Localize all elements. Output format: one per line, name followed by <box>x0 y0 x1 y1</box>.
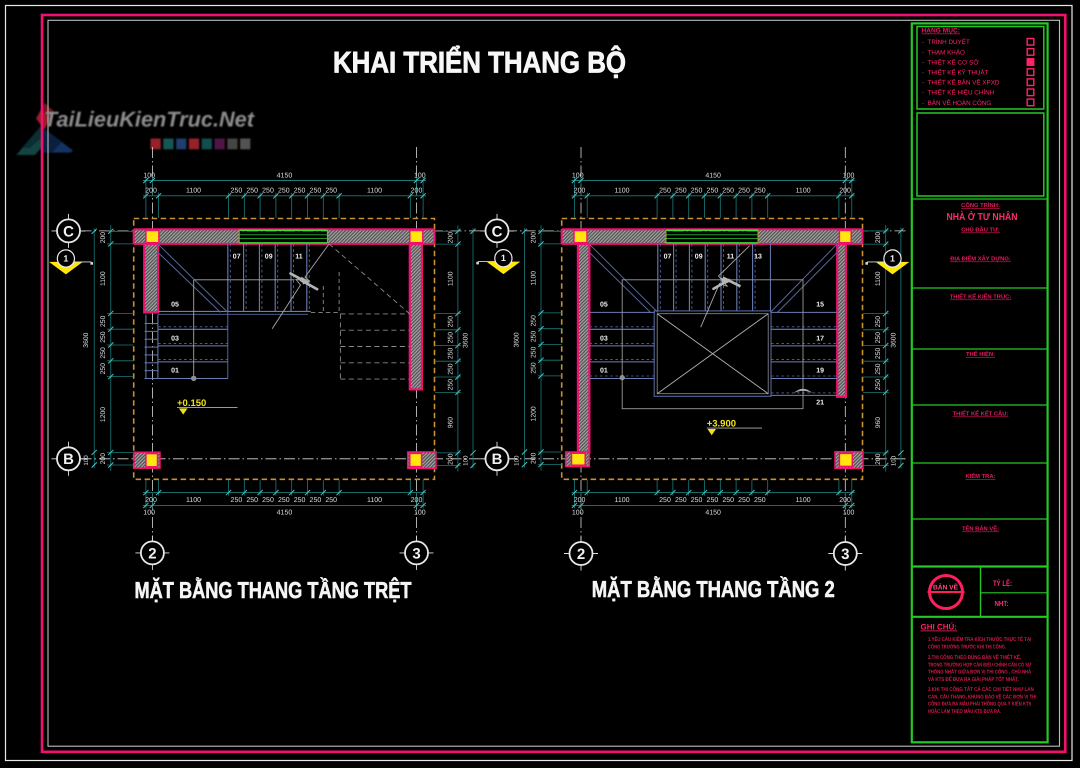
svg-text:21: 21 <box>816 400 824 407</box>
svg-text:250: 250 <box>530 315 537 327</box>
svg-text:3600: 3600 <box>890 332 897 347</box>
svg-text:250: 250 <box>447 316 454 328</box>
svg-text:THIẾT KẾ KIẾN TRÚC:: THIẾT KẾ KIẾN TRÚC: <box>950 293 1012 301</box>
svg-text:- THIẾT KẾ BẢN VẼ XPXD: - THIẾT KẾ BẢN VẼ XPXD <box>922 79 1000 87</box>
svg-text:4150: 4150 <box>705 172 721 179</box>
svg-text:TÊN BẢN VẼ:: TÊN BẢN VẼ: <box>962 525 999 533</box>
svg-text:NHT:: NHT: <box>995 599 1009 608</box>
svg-text:ĐỊA ĐIỂM XÂY DỰNG:: ĐỊA ĐIỂM XÂY DỰNG: <box>950 255 1011 263</box>
svg-text:250: 250 <box>100 315 107 327</box>
svg-text:250: 250 <box>707 188 719 195</box>
svg-text:05: 05 <box>600 302 608 309</box>
svg-text:200: 200 <box>145 188 157 195</box>
svg-text:250: 250 <box>875 379 882 391</box>
svg-text:THIẾT KẾ KẾT CẤU:: THIẾT KẾ KẾT CẤU: <box>953 410 1009 418</box>
svg-text:3.KHI THI CÔNG TẤT CẢ CÁC CHI: 3.KHI THI CÔNG TẤT CẢ CÁC CHI TIẾT NHƯ L… <box>928 686 1034 693</box>
svg-text:05: 05 <box>171 302 179 309</box>
svg-text:MẶT BẰNG THANG TẦNG TRỆT: MẶT BẰNG THANG TẦNG TRỆT <box>135 577 412 603</box>
svg-text:CHỦ ĐẦU TƯ:: CHỦ ĐẦU TƯ: <box>961 226 1000 234</box>
svg-text:TRONG TRƯỜNG HỢP CẦN ĐIỀU CHỈN: TRONG TRƯỜNG HỢP CẦN ĐIỀU CHỈNH CẦN CÓ S… <box>928 661 1032 668</box>
svg-text:100: 100 <box>414 510 426 517</box>
svg-text:09: 09 <box>265 254 273 261</box>
svg-text:250: 250 <box>278 497 290 504</box>
svg-text:200: 200 <box>530 452 537 464</box>
svg-text:MẶT BẰNG THANG TẦNG 2: MẶT BẰNG THANG TẦNG 2 <box>592 576 835 602</box>
svg-text:1100: 1100 <box>367 188 382 195</box>
svg-text:KHAI TRIỂN THANG BỘ: KHAI TRIỂN THANG BỘ <box>333 46 626 80</box>
svg-text:1100: 1100 <box>530 271 537 286</box>
svg-text:- THIẾT KẾ CƠ SỞ: - THIẾT KẾ CƠ SỞ <box>922 58 979 66</box>
svg-text:100: 100 <box>143 510 155 517</box>
svg-text:KIỂM TRA:: KIỂM TRA: <box>966 472 996 480</box>
svg-text:- THIẾT KẾ KỸ THUẬT: - THIẾT KẾ KỸ THUẬT <box>922 69 989 77</box>
svg-text:250: 250 <box>659 497 671 504</box>
svg-text:960: 960 <box>875 417 882 429</box>
svg-text:THỐNG NHẤT GIỮA ĐƠN VỊ THI CÔN: THỐNG NHẤT GIỮA ĐƠN VỊ THI CÔNG , CHỦ NH… <box>928 669 1031 676</box>
svg-text:250: 250 <box>100 363 107 375</box>
svg-text:250: 250 <box>231 497 243 504</box>
svg-text:CÔNG TRƯỜNG TRƯỚC KHI THI CÔNG: CÔNG TRƯỜNG TRƯỚC KHI THI CÔNG. <box>928 643 1006 650</box>
svg-text:100: 100 <box>890 455 897 466</box>
svg-text:250: 250 <box>530 331 537 343</box>
svg-text:200: 200 <box>411 497 423 504</box>
svg-text:250: 250 <box>294 188 306 195</box>
svg-text:250: 250 <box>722 188 734 195</box>
svg-text:- BẢN VẼ HOÀN CÔNG: - BẢN VẼ HOÀN CÔNG <box>922 99 991 107</box>
svg-text:09: 09 <box>695 254 703 261</box>
svg-text:3600: 3600 <box>83 332 90 347</box>
svg-text:250: 250 <box>875 332 882 344</box>
svg-text:3600: 3600 <box>462 333 469 348</box>
svg-text:200: 200 <box>411 188 423 195</box>
svg-text:250: 250 <box>754 497 766 504</box>
svg-text:1200: 1200 <box>100 407 107 422</box>
svg-text:VÀ KTS ĐỂ ĐƯA RA GIẢI PHÁP TỐT: VÀ KTS ĐỂ ĐƯA RA GIẢI PHÁP TỐT NHẤT. <box>928 676 1019 683</box>
svg-text:TaiLieuKienTruc.Net: TaiLieuKienTruc.Net <box>44 108 255 132</box>
svg-text:17: 17 <box>816 336 824 343</box>
svg-text:200: 200 <box>875 232 882 244</box>
svg-text:250: 250 <box>875 363 882 375</box>
svg-text:250: 250 <box>875 316 882 328</box>
svg-text:200: 200 <box>574 188 586 195</box>
svg-text:250: 250 <box>100 347 107 359</box>
svg-text:1: 1 <box>890 253 895 263</box>
svg-text:07: 07 <box>233 254 241 261</box>
svg-text:11: 11 <box>295 254 303 261</box>
svg-text:960: 960 <box>447 417 454 429</box>
svg-text:200: 200 <box>574 497 586 504</box>
svg-text:200: 200 <box>447 232 454 244</box>
svg-text:11: 11 <box>727 254 735 261</box>
svg-text:1100: 1100 <box>614 497 629 504</box>
svg-text:250: 250 <box>722 497 734 504</box>
svg-text:1100: 1100 <box>796 497 811 504</box>
svg-text:200: 200 <box>530 232 537 244</box>
svg-text:200: 200 <box>875 453 882 465</box>
svg-text:19: 19 <box>816 368 824 375</box>
svg-text:TỶ LỆ:: TỶ LỆ: <box>993 578 1012 588</box>
svg-text:250: 250 <box>246 497 258 504</box>
svg-text:250: 250 <box>310 497 322 504</box>
svg-text:1200: 1200 <box>530 406 537 421</box>
svg-text:250: 250 <box>262 188 274 195</box>
svg-text:250: 250 <box>278 188 290 195</box>
svg-text:250: 250 <box>738 497 750 504</box>
svg-text:200: 200 <box>100 232 107 244</box>
svg-text:100: 100 <box>572 172 584 179</box>
svg-text:2.THI CÔNG THEO ĐÚNG BẢN VẼ TH: 2.THI CÔNG THEO ĐÚNG BẢN VẼ THIẾT KẾ, <box>928 654 1022 661</box>
svg-text:250: 250 <box>447 379 454 391</box>
svg-text:THỂ HIỆN:: THỂ HIỆN: <box>966 350 995 358</box>
svg-text:1100: 1100 <box>875 271 882 286</box>
svg-text:200: 200 <box>839 497 851 504</box>
svg-text:100: 100 <box>143 172 155 179</box>
svg-text:BẢN VẼ: BẢN VẼ <box>933 583 958 592</box>
svg-text:1100: 1100 <box>186 188 201 195</box>
svg-text:250: 250 <box>246 188 258 195</box>
svg-text:100: 100 <box>514 455 521 466</box>
svg-text:250: 250 <box>530 346 537 358</box>
svg-text:03: 03 <box>171 336 179 343</box>
svg-text:100: 100 <box>83 455 90 466</box>
svg-text:- THIẾT KẾ HIỆU CHỈNH: - THIẾT KẾ HIỆU CHỈNH <box>922 89 995 97</box>
svg-text:250: 250 <box>707 497 719 504</box>
svg-text:3: 3 <box>841 546 849 563</box>
svg-text:4150: 4150 <box>277 172 293 179</box>
svg-text:250: 250 <box>231 188 243 195</box>
svg-text:200: 200 <box>839 188 851 195</box>
svg-text:250: 250 <box>447 363 454 375</box>
svg-text:CÔNG ĐƯA RA MẪU PHẢI THÔNG QUA: CÔNG ĐƯA RA MẪU PHẢI THÔNG QUA Ý KIẾN KT… <box>928 701 1032 708</box>
svg-text:100: 100 <box>462 455 469 466</box>
svg-text:C: C <box>63 223 74 240</box>
svg-text:250: 250 <box>294 497 306 504</box>
svg-text:2: 2 <box>148 545 156 562</box>
svg-text:HẠNG MỤC:: HẠNG MỤC: <box>922 28 960 35</box>
svg-text:HOẶC LÀM THEO MẪU KTS ĐƯA RA.: HOẶC LÀM THEO MẪU KTS ĐƯA RA. <box>928 708 1001 715</box>
svg-text:100: 100 <box>843 510 855 517</box>
svg-text:250: 250 <box>530 362 537 374</box>
svg-text:CÔNG TRÌNH:: CÔNG TRÌNH: <box>961 201 1000 209</box>
svg-text:1100: 1100 <box>367 497 382 504</box>
svg-text:1100: 1100 <box>100 271 107 286</box>
svg-text:1: 1 <box>501 253 506 263</box>
svg-text:4150: 4150 <box>277 510 293 517</box>
svg-text:07: 07 <box>664 254 672 261</box>
svg-text:2: 2 <box>577 546 585 563</box>
svg-text:4150: 4150 <box>705 510 721 517</box>
svg-text:- THAM KHẢO: - THAM KHẢO <box>922 48 965 56</box>
svg-text:250: 250 <box>262 497 274 504</box>
svg-text:1100: 1100 <box>186 497 201 504</box>
svg-text:250: 250 <box>100 331 107 343</box>
svg-text:B: B <box>63 451 74 468</box>
svg-text:01: 01 <box>600 368 608 375</box>
svg-text:C: C <box>492 223 503 240</box>
svg-text:200: 200 <box>145 497 157 504</box>
svg-text:250: 250 <box>659 188 671 195</box>
svg-text:3600: 3600 <box>514 332 521 347</box>
svg-text:1100: 1100 <box>796 188 811 195</box>
svg-text:200: 200 <box>100 453 107 465</box>
svg-text:GHI CHÚ:: GHI CHÚ: <box>921 622 957 632</box>
svg-text:NHÀ Ở TƯ NHÂN: NHÀ Ở TƯ NHÂN <box>947 211 1018 223</box>
svg-text:250: 250 <box>875 348 882 360</box>
svg-text:250: 250 <box>691 188 703 195</box>
svg-text:B: B <box>492 451 503 468</box>
svg-text:250: 250 <box>310 188 322 195</box>
svg-text:100: 100 <box>572 510 584 517</box>
svg-text:15: 15 <box>816 302 824 309</box>
svg-text:03: 03 <box>600 336 608 343</box>
svg-text:250: 250 <box>754 188 766 195</box>
svg-text:- TRÌNH DUYỆT: - TRÌNH DUYỆT <box>922 38 970 46</box>
svg-text:100: 100 <box>414 172 426 179</box>
svg-text:100: 100 <box>843 172 855 179</box>
svg-text:13: 13 <box>754 254 762 261</box>
svg-text:1100: 1100 <box>614 188 629 195</box>
svg-text:3: 3 <box>412 545 420 562</box>
svg-text:01: 01 <box>171 368 179 375</box>
svg-text:200: 200 <box>447 453 454 465</box>
svg-text:250: 250 <box>675 188 687 195</box>
svg-text:250: 250 <box>325 188 337 195</box>
svg-text:250: 250 <box>447 348 454 360</box>
svg-text:250: 250 <box>325 497 337 504</box>
svg-text:250: 250 <box>738 188 750 195</box>
svg-text:1100: 1100 <box>447 271 454 286</box>
svg-text:1: 1 <box>63 253 68 263</box>
svg-text:CAN, CẦU THANG, KHUNG BẢO VỆ C: CAN, CẦU THANG, KHUNG BẢO VỆ CÁC ĐƠN VỊ … <box>928 693 1037 700</box>
svg-text:250: 250 <box>447 332 454 344</box>
svg-text:1.YÊU CẦU KIỂM TRA KÍCH THƯỚC: 1.YÊU CẦU KIỂM TRA KÍCH THƯỚC THỰC TẾ TẠ… <box>928 636 1032 643</box>
svg-text:250: 250 <box>675 497 687 504</box>
svg-text:250: 250 <box>691 497 703 504</box>
